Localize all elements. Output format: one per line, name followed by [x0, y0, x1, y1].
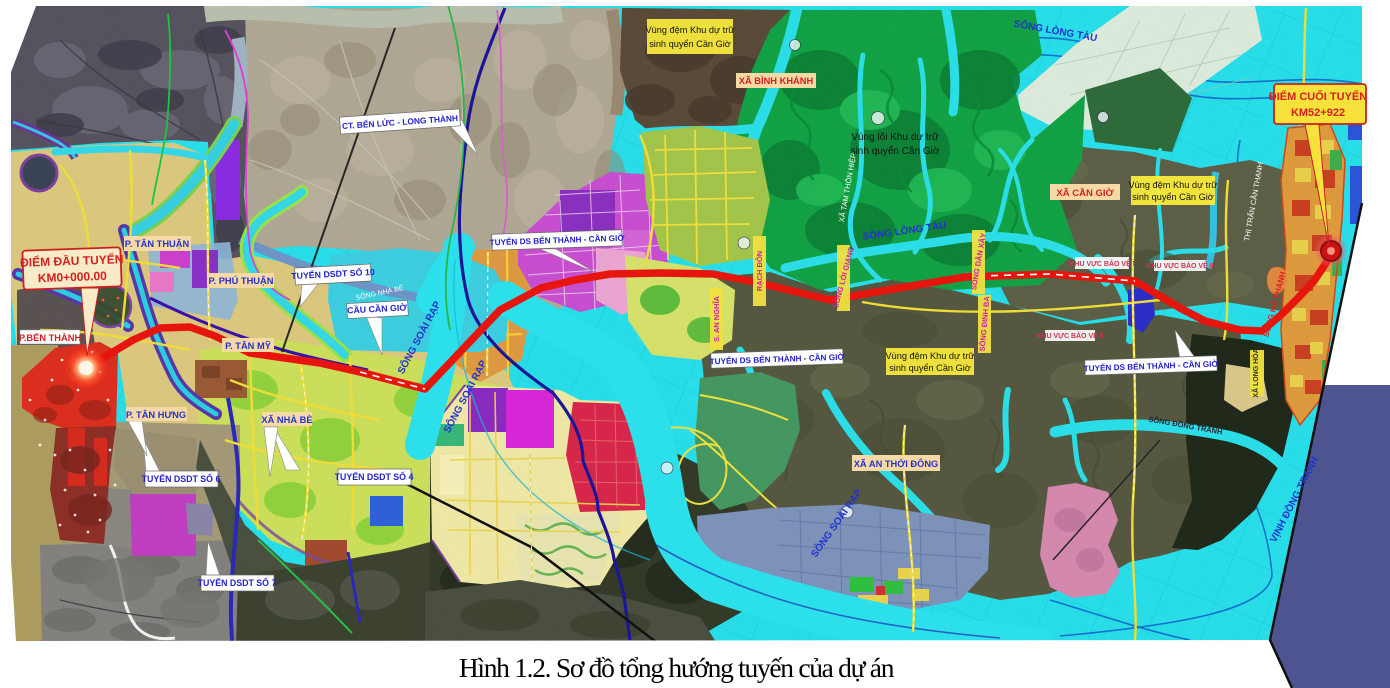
- svg-text:Vùng đệm Khu dự trữ: Vùng đệm Khu dự trữ: [646, 25, 735, 35]
- svg-text:P. TÂN THUẬN: P. TÂN THUẬN: [125, 238, 190, 249]
- svg-text:RẠCH ĐÔN: RẠCH ĐÔN: [755, 251, 764, 291]
- svg-text:KHU VỰC BẢO VỆ I: KHU VỰC BẢO VỆ I: [1069, 259, 1134, 268]
- svg-text:XÃ NHÀ BÈ: XÃ NHÀ BÈ: [261, 415, 312, 425]
- svg-text:sinh quyển Cần Giờ: sinh quyển Cần Giờ: [889, 363, 971, 373]
- svg-text:S. AN NGHĨA: S. AN NGHĨA: [712, 295, 721, 342]
- svg-text:sinh quyển Cần Giờ: sinh quyển Cần Giờ: [649, 39, 731, 49]
- svg-text:Vùng lõi Khu dự trữ: Vùng lõi Khu dự trữ: [851, 132, 939, 143]
- svg-text:ĐIỂM CUỐI TUYẾN: ĐIỂM CUỐI TUYẾN: [1269, 89, 1367, 103]
- svg-text:XÃ CẦN GIỜ: XÃ CẦN GIỜ: [1056, 187, 1114, 199]
- svg-text:XÃ AN THỚI ĐÔNG: XÃ AN THỚI ĐÔNG: [854, 458, 939, 469]
- svg-text:TUYẾN DSDT SỐ 7: TUYẾN DSDT SỐ 7: [198, 577, 277, 588]
- svg-text:KM0+000.00: KM0+000.00: [38, 269, 108, 285]
- svg-text:P.BẾN THÀNH: P.BẾN THÀNH: [19, 333, 82, 343]
- svg-text:TUYẾN DSDT SỐ 6: TUYẾN DSDT SỐ 6: [142, 473, 221, 484]
- svg-text:KHU VỰC BẢO VỆ II: KHU VỰC BẢO VỆ II: [1036, 331, 1103, 340]
- svg-text:P. PHÚ THUẬN: P. PHÚ THUẬN: [209, 275, 274, 286]
- svg-text:TUYẾN DSDT SỐ 4: TUYẾN DSDT SỐ 4: [335, 471, 414, 482]
- svg-text:KM52+922: KM52+922: [1291, 107, 1345, 119]
- svg-text:sinh quyển Cần Giờ: sinh quyển Cần Giờ: [851, 145, 940, 157]
- svg-text:XÃ BÌNH KHÁNH: XÃ BÌNH KHÁNH: [739, 76, 814, 86]
- svg-text:P. TÂN MỸ: P. TÂN MỸ: [225, 340, 272, 351]
- svg-text:sinh quyển Cần Giờ: sinh quyển Cần Giờ: [1132, 192, 1214, 202]
- svg-text:KHU VỰC BẢO VỆ II: KHU VỰC BẢO VỆ II: [1146, 261, 1213, 270]
- svg-text:Vùng đệm Khu dự trữ: Vùng đệm Khu dự trữ: [886, 351, 975, 361]
- svg-text:Hình 1.2. Sơ đồ tổng hướng tuy: Hình 1.2. Sơ đồ tổng hướng tuyến của dự …: [459, 652, 895, 683]
- svg-text:P. TÂN HƯNG: P. TÂN HƯNG: [126, 409, 186, 420]
- svg-text:Vùng đệm Khu dự trữ: Vùng đệm Khu dự trữ: [1129, 180, 1218, 190]
- svg-text:XÃ LONG HÒA: XÃ LONG HÒA: [1251, 348, 1260, 397]
